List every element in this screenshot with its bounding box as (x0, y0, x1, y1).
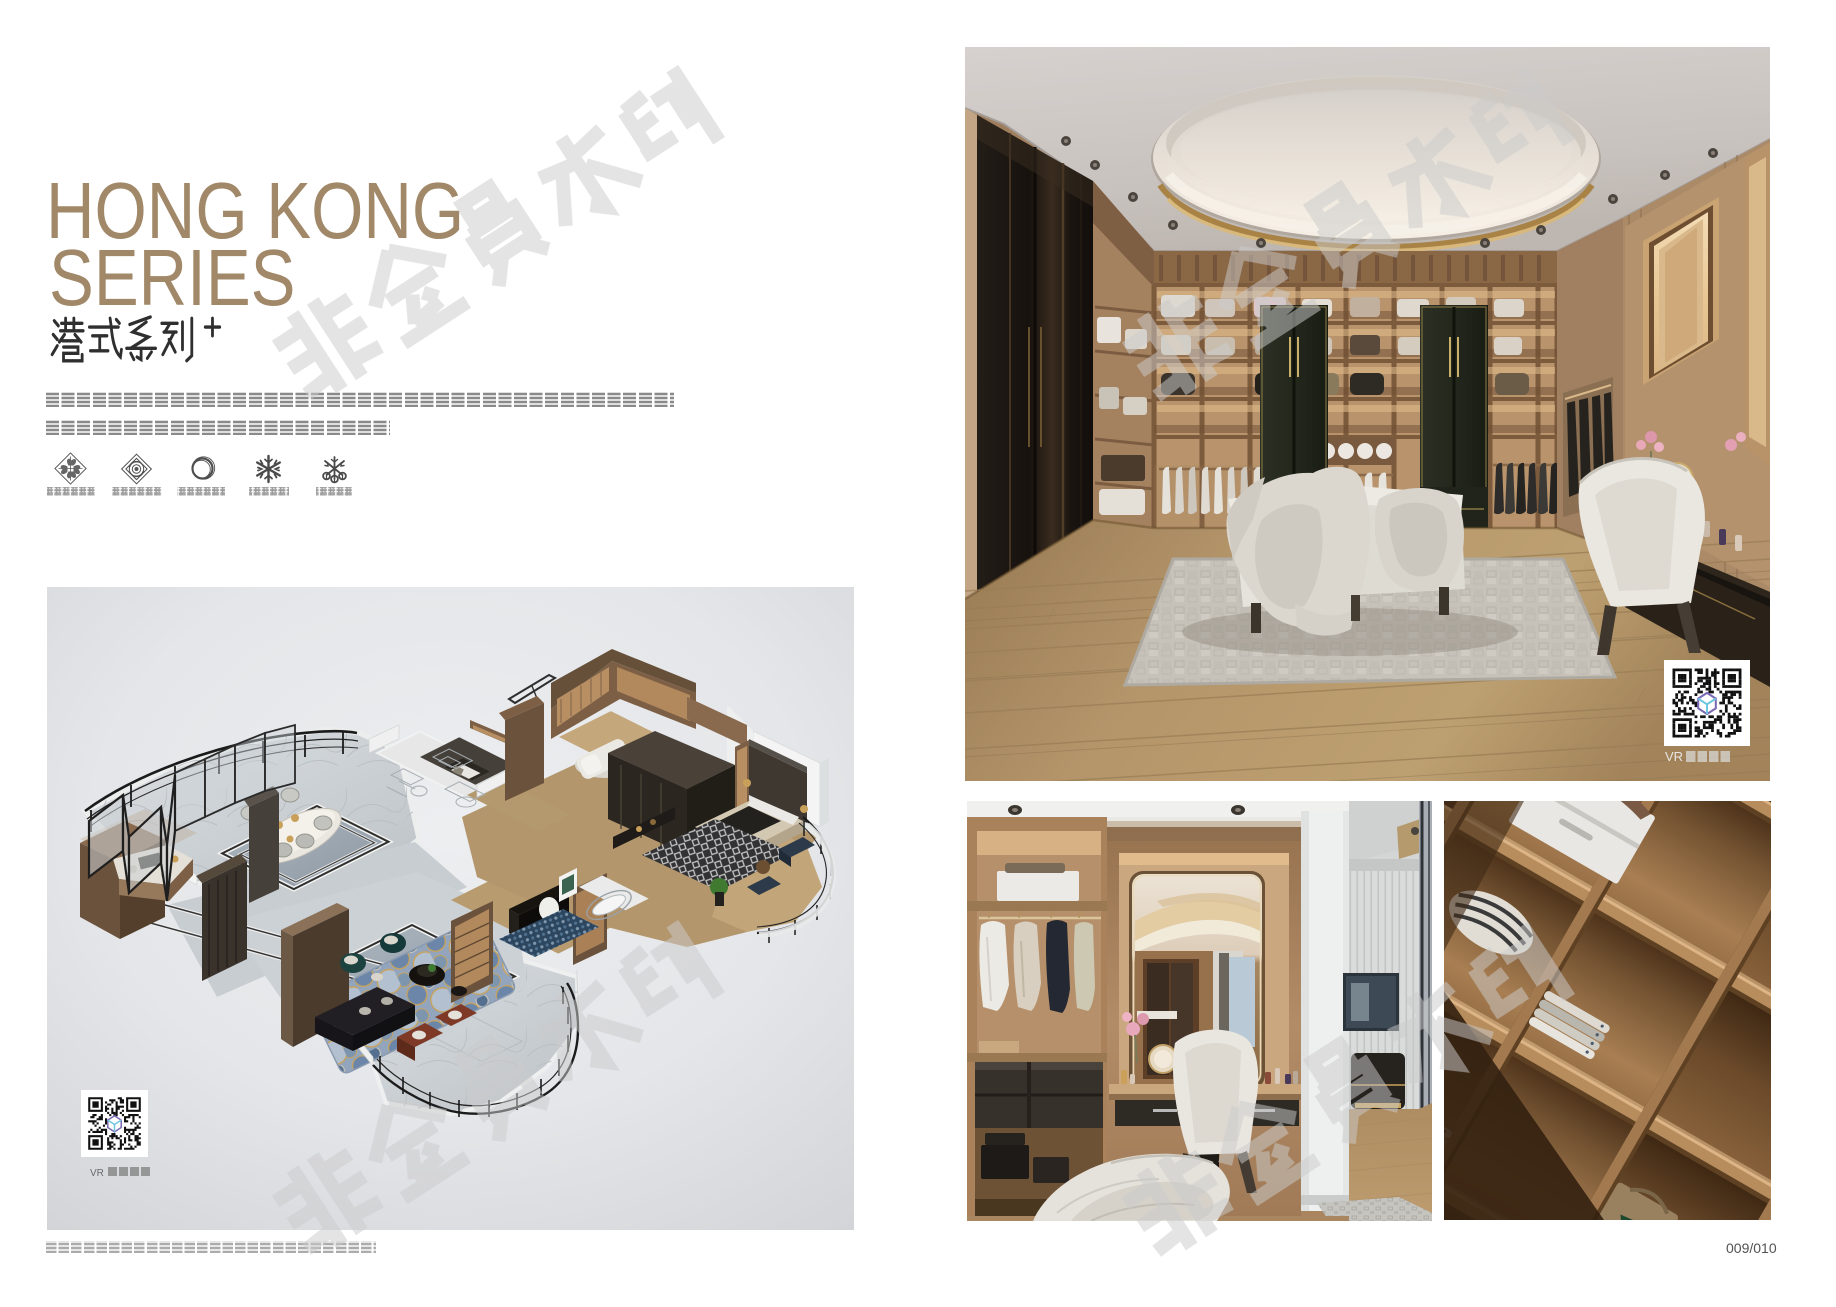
svg-text:VR: VR (90, 1168, 104, 1179)
svg-text:VR: VR (1665, 749, 1683, 764)
